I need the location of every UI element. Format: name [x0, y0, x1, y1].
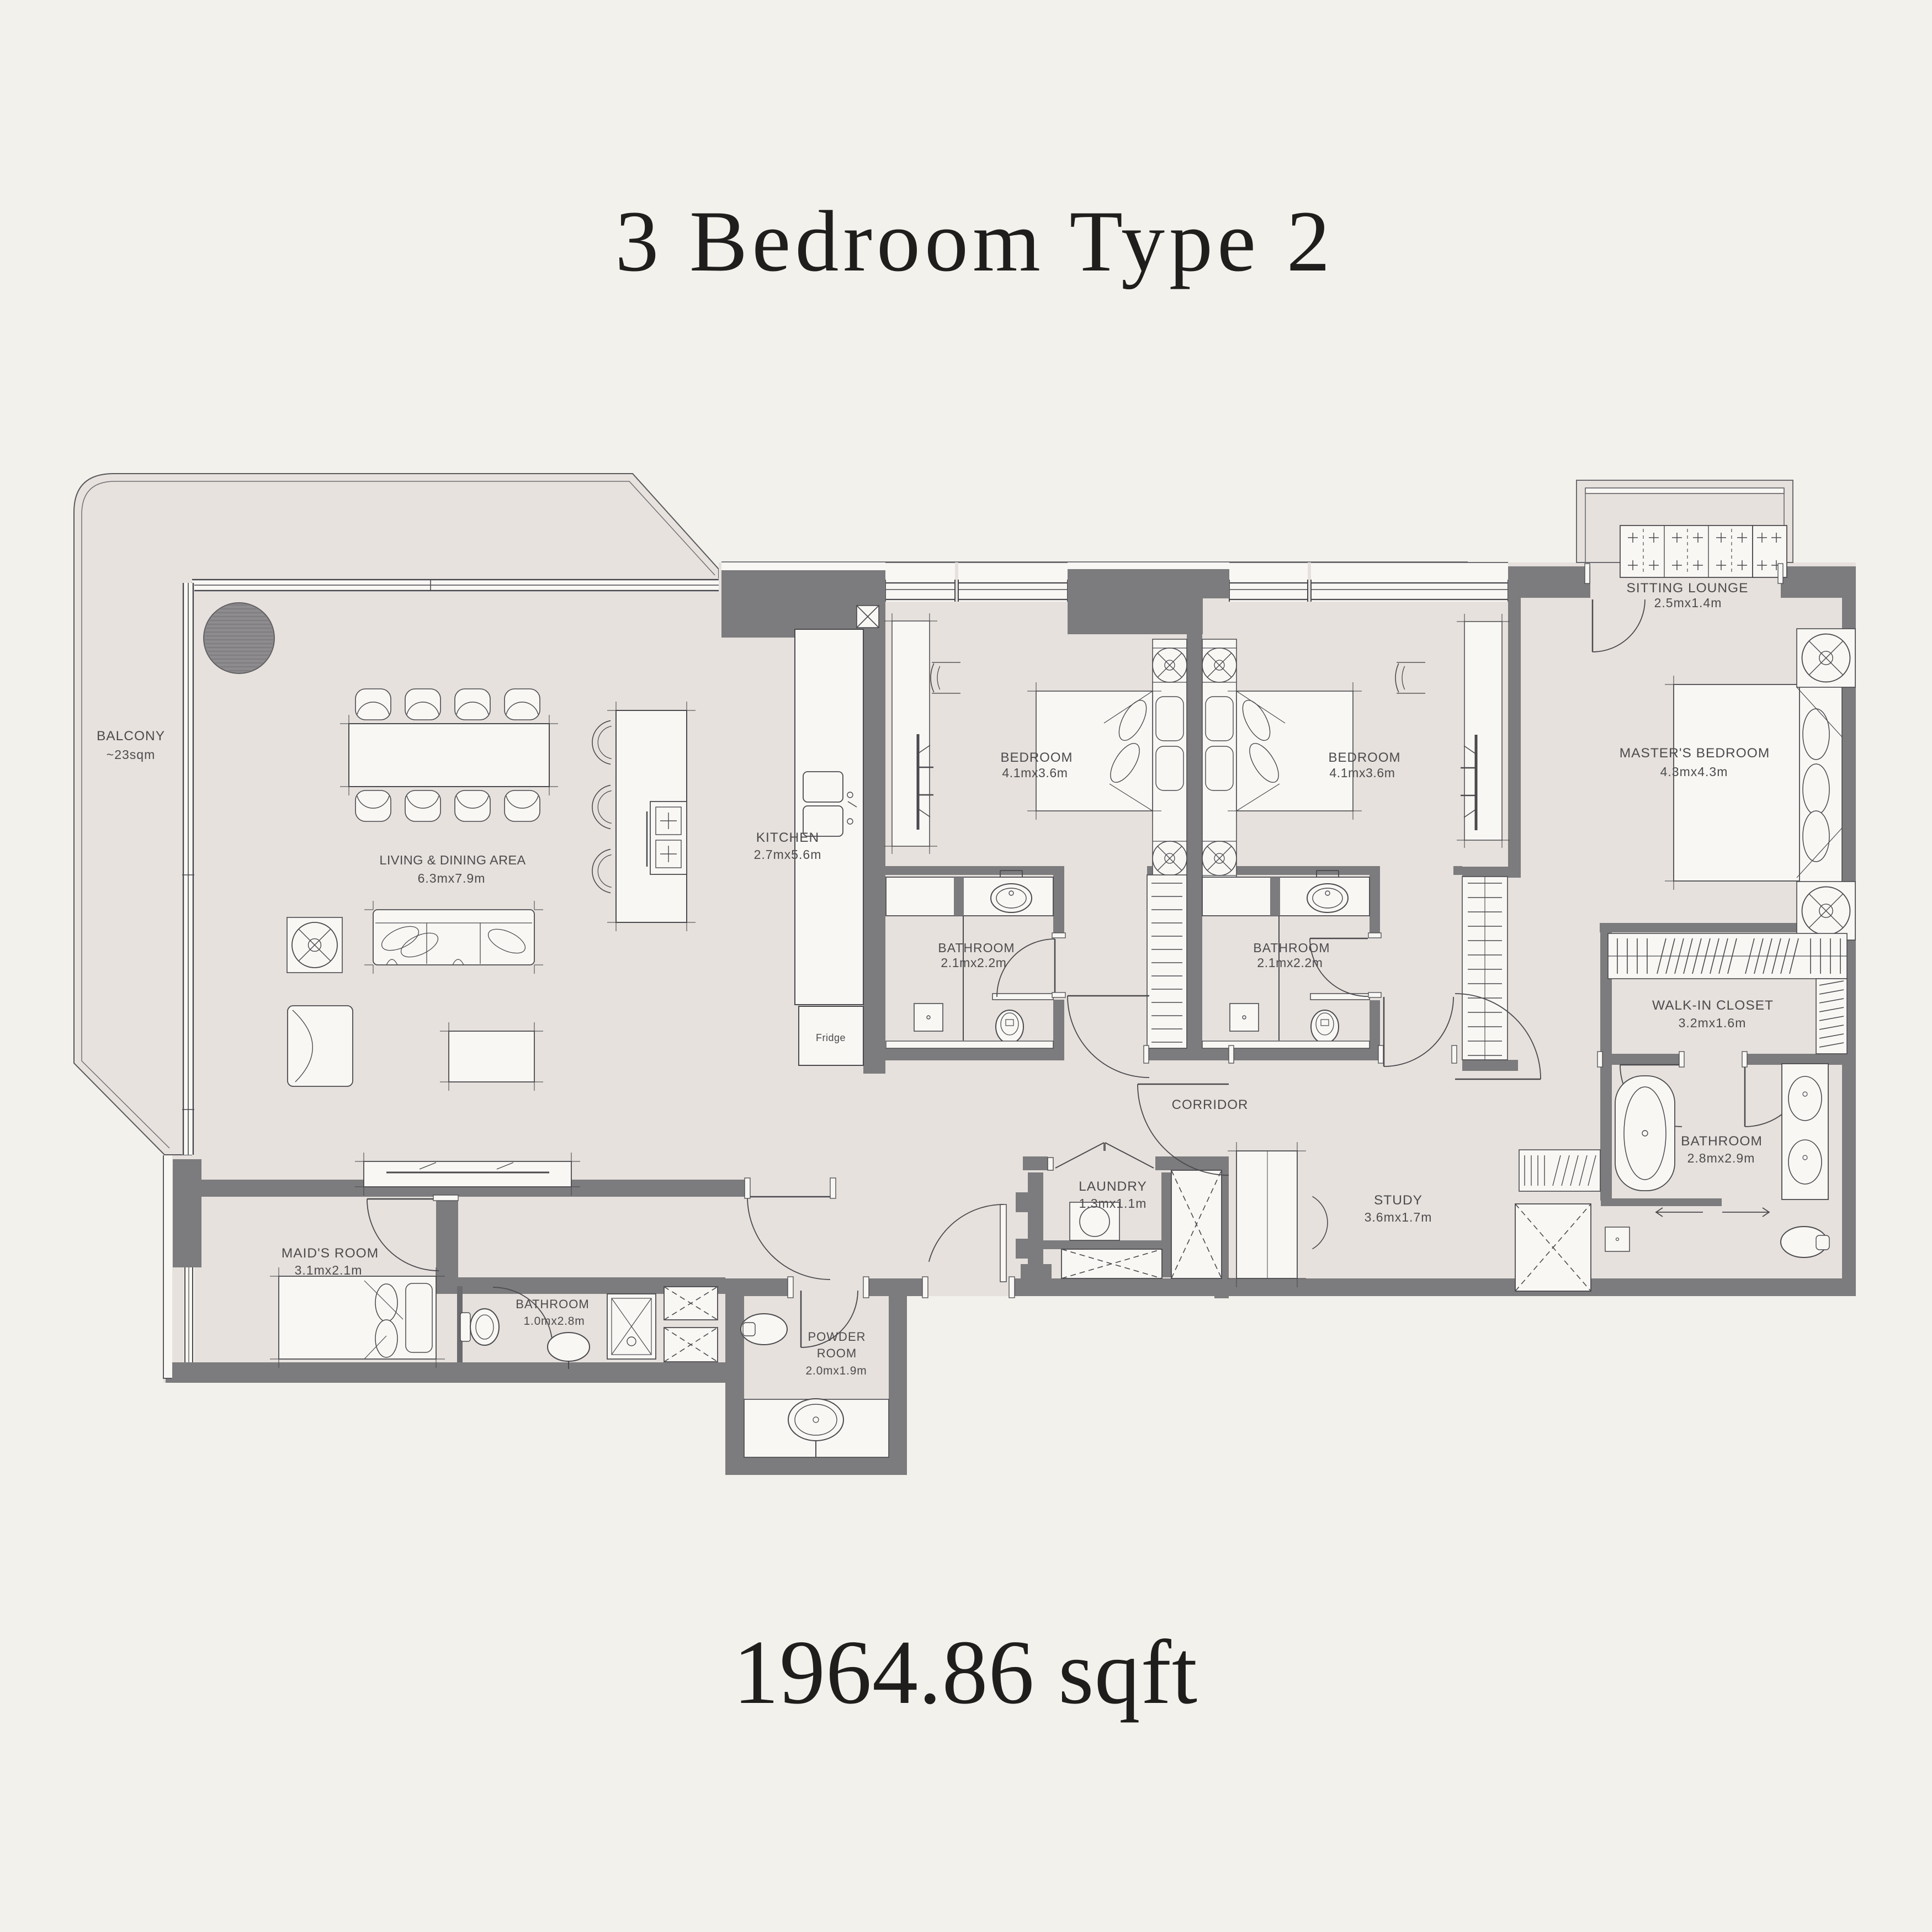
svg-text:1.0mx2.8m: 1.0mx2.8m — [523, 1315, 585, 1328]
svg-text:Fridge: Fridge — [816, 1032, 846, 1043]
svg-text:~23sqm: ~23sqm — [107, 747, 155, 762]
svg-text:LAUNDRY: LAUNDRY — [1079, 1179, 1147, 1194]
svg-text:WALK-IN CLOSET: WALK-IN CLOSET — [1652, 998, 1774, 1013]
svg-text:3.2mx1.6m: 3.2mx1.6m — [1679, 1016, 1747, 1030]
svg-text:CORRIDOR: CORRIDOR — [1172, 1097, 1249, 1112]
svg-text:BEDROOM: BEDROOM — [1328, 750, 1400, 765]
svg-text:6.3mx7.9m: 6.3mx7.9m — [418, 871, 486, 885]
svg-text:2.8mx2.9m: 2.8mx2.9m — [1687, 1151, 1755, 1165]
svg-text:BATHROOM: BATHROOM — [516, 1297, 589, 1311]
svg-text:3 Bedroom Type 2: 3 Bedroom Type 2 — [615, 193, 1334, 290]
svg-text:1.3mx1.1m: 1.3mx1.1m — [1079, 1196, 1147, 1211]
svg-text:2.1mx2.2m: 2.1mx2.2m — [1257, 956, 1323, 970]
svg-text:POWDER: POWDER — [808, 1330, 866, 1344]
svg-text:1964.86 sqft: 1964.86 sqft — [733, 1621, 1198, 1723]
svg-text:4.1mx3.6m: 4.1mx3.6m — [1329, 766, 1395, 780]
svg-text:2.5mx1.4m: 2.5mx1.4m — [1654, 596, 1722, 610]
svg-text:ROOM: ROOM — [817, 1346, 857, 1360]
svg-text:BATHROOM: BATHROOM — [938, 941, 1015, 955]
svg-text:MASTER'S BEDROOM: MASTER'S BEDROOM — [1620, 746, 1770, 761]
svg-text:3.1mx2.1m: 3.1mx2.1m — [295, 1263, 363, 1277]
svg-text:LIVING & DINING AREA: LIVING & DINING AREA — [379, 853, 526, 867]
svg-text:STUDY: STUDY — [1374, 1193, 1423, 1208]
svg-text:BATHROOM: BATHROOM — [1253, 941, 1330, 955]
svg-text:KITCHEN: KITCHEN — [756, 830, 820, 845]
svg-text:BALCONY: BALCONY — [97, 729, 165, 744]
svg-text:2.0mx1.9m: 2.0mx1.9m — [805, 1365, 867, 1377]
svg-text:SITTING LOUNGE: SITTING LOUNGE — [1627, 581, 1749, 596]
svg-text:4.3mx4.3m: 4.3mx4.3m — [1660, 765, 1728, 779]
svg-text:MAID'S ROOM: MAID'S ROOM — [282, 1246, 379, 1261]
svg-text:3.6mx1.7m: 3.6mx1.7m — [1365, 1210, 1432, 1224]
svg-text:BEDROOM: BEDROOM — [1000, 750, 1073, 765]
svg-text:4.1mx3.6m: 4.1mx3.6m — [1002, 766, 1068, 780]
svg-text:BATHROOM: BATHROOM — [1681, 1134, 1763, 1149]
svg-text:2.7mx5.6m: 2.7mx5.6m — [754, 847, 822, 862]
svg-text:2.1mx2.2m: 2.1mx2.2m — [941, 956, 1006, 970]
